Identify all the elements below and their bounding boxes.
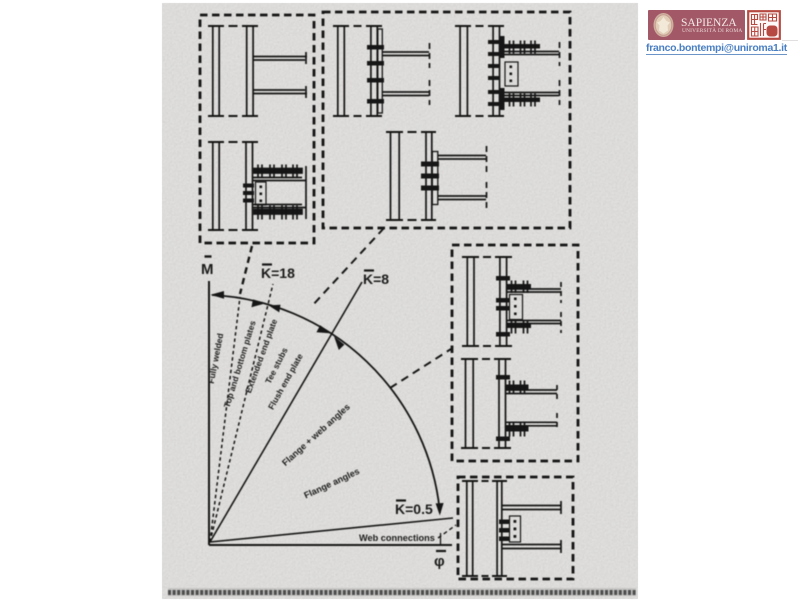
svg-text:K=0.5: K=0.5 xyxy=(395,501,433,517)
svg-text:K=18: K=18 xyxy=(261,265,295,281)
svg-text:Web connections: Web connections xyxy=(359,533,435,543)
svg-text:φ: φ xyxy=(434,553,445,570)
svg-text:M: M xyxy=(201,261,214,278)
svg-text:K=8: K=8 xyxy=(363,271,389,287)
